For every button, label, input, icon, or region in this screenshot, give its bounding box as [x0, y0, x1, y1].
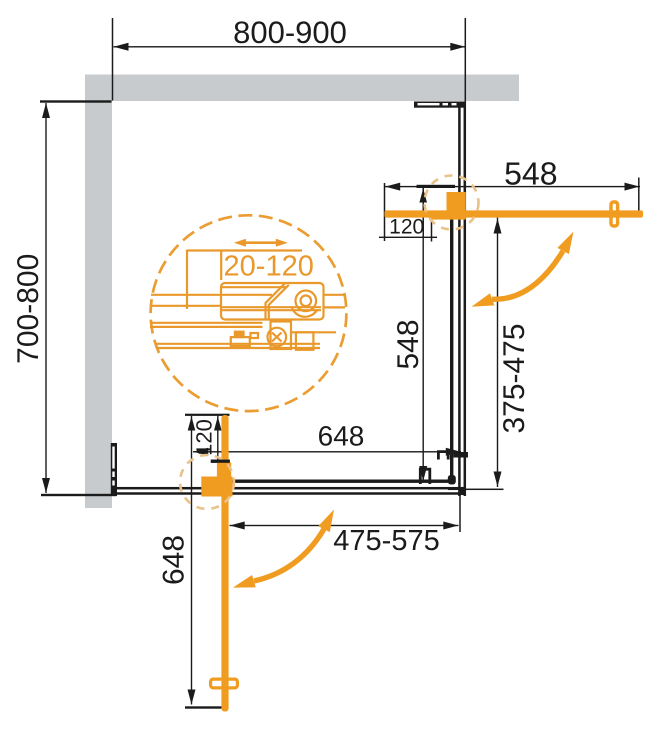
svg-text:548: 548 [392, 319, 425, 369]
svg-text:648: 648 [318, 421, 365, 452]
svg-text:20-120: 20-120 [224, 251, 314, 283]
svg-text:475-575: 475-575 [333, 525, 439, 557]
svg-text:800-900: 800-900 [233, 15, 347, 50]
svg-text:700-800: 700-800 [12, 254, 45, 364]
svg-text:375-475: 375-475 [498, 323, 531, 433]
svg-text:120: 120 [389, 216, 424, 239]
svg-text:548: 548 [504, 156, 557, 192]
svg-text:648: 648 [158, 535, 191, 585]
svg-text:120: 120 [192, 419, 217, 456]
